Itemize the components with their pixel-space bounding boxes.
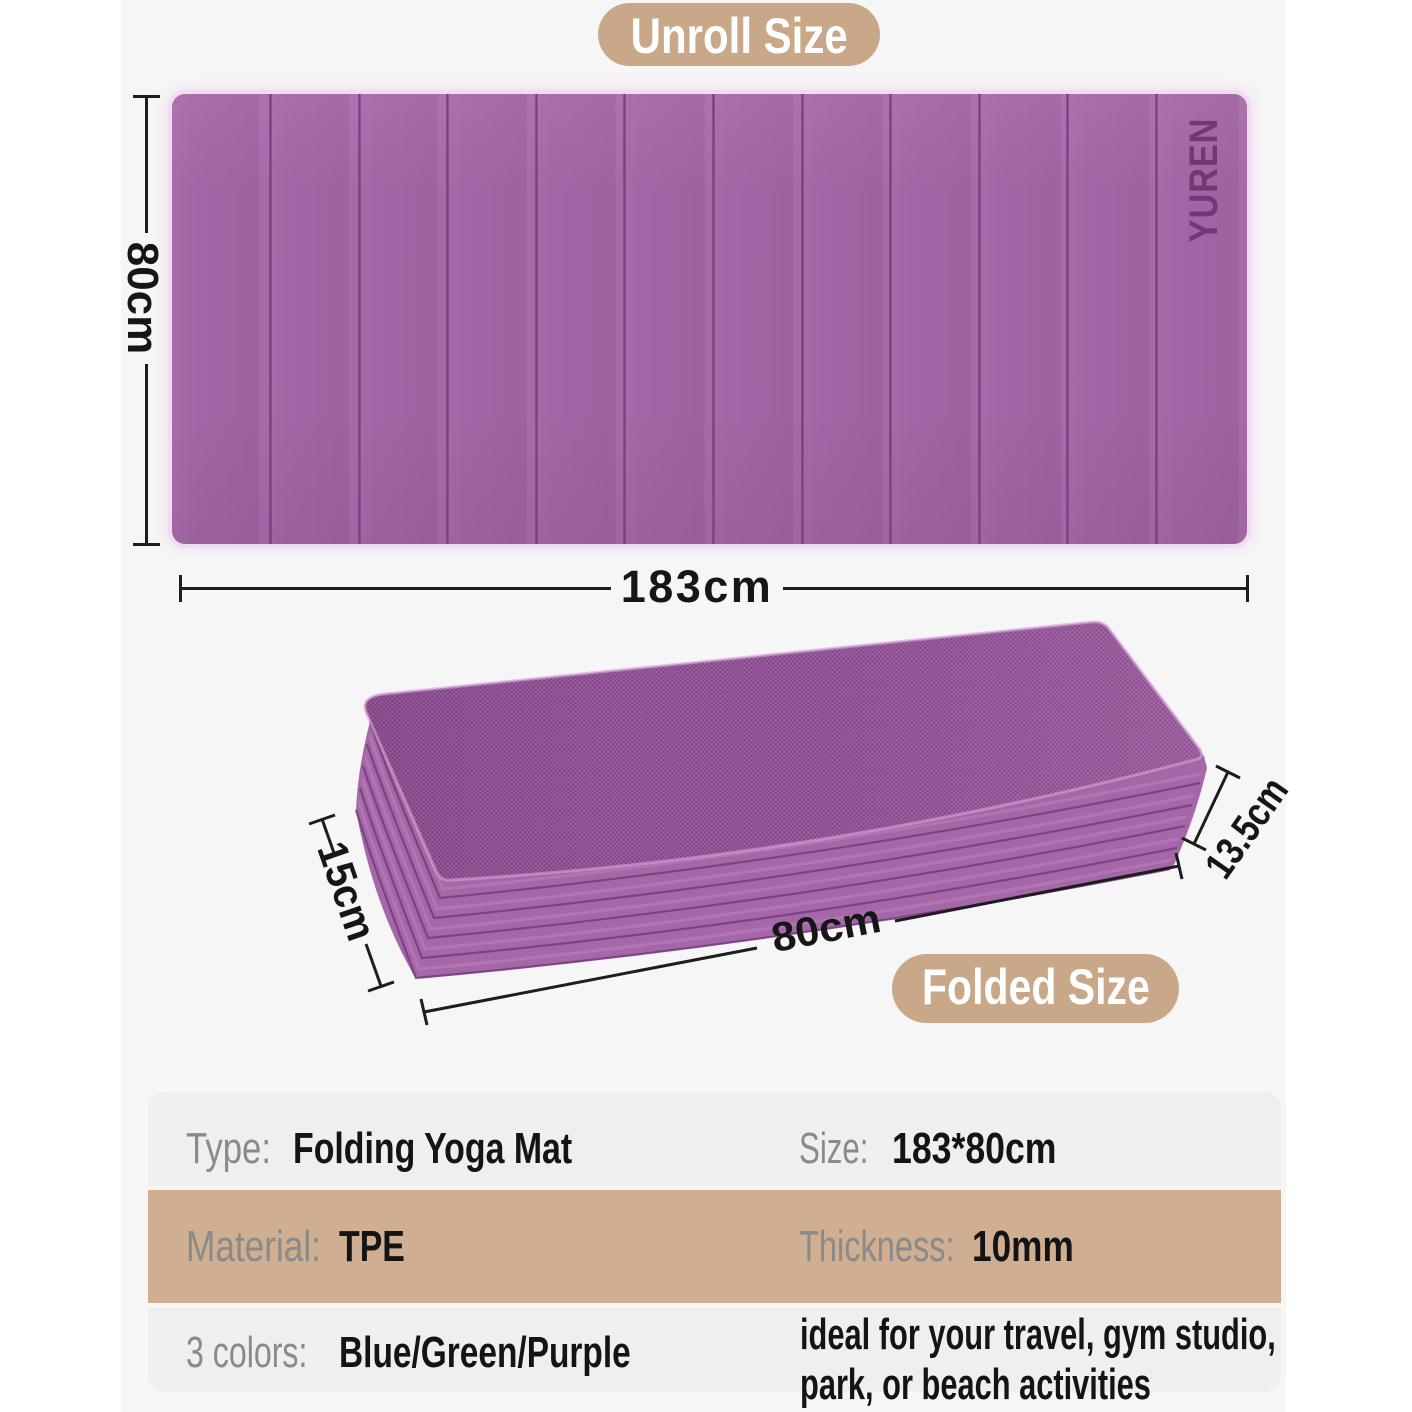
svg-text:13.5cm: 13.5cm [1197,770,1297,887]
